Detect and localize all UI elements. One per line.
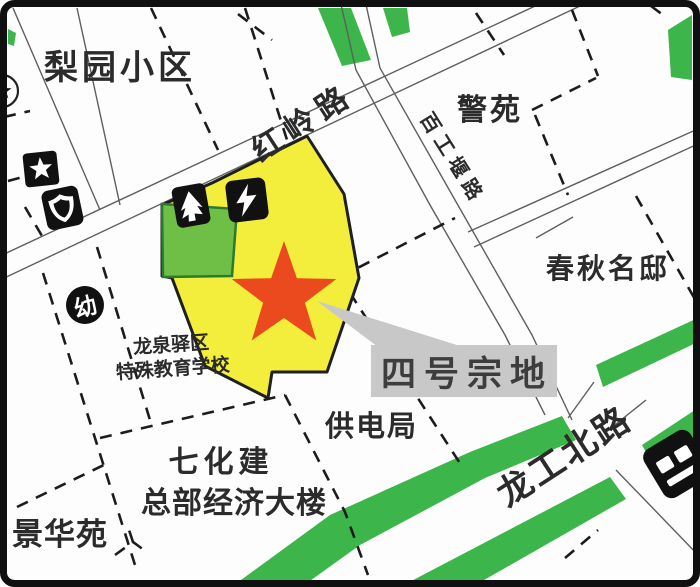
station-icon — [639, 426, 700, 502]
label-liyuan-estate: 梨园小区 — [44, 50, 196, 87]
label-power-bureau: 供电局 — [325, 412, 418, 444]
shield-badge-icon — [40, 184, 85, 231]
star-badge-icon — [22, 150, 59, 187]
label-jinghuayuan: 景华苑 — [12, 518, 108, 552]
label-qihuajian-line1: 七化建 — [146, 446, 296, 479]
parcel-callout-box: 四号宗地 — [371, 345, 557, 397]
tree-icon — [171, 182, 212, 228]
map-frame: 梨园小区 红岭路 警苑 百工堰路 春秋名邸 龙泉驿区 特殊教育学校 四号宗地 供… — [0, 0, 700, 587]
lightning-power-icon — [225, 177, 270, 224]
label-chunqiu-mansion: 春秋名邸 — [546, 254, 670, 285]
label-special-school: 龙泉驿区 特殊教育学校 — [99, 329, 246, 386]
label-jingyuan: 警苑 — [457, 94, 523, 127]
label-qihuajian-line2: 总部经济大楼 — [134, 487, 334, 520]
